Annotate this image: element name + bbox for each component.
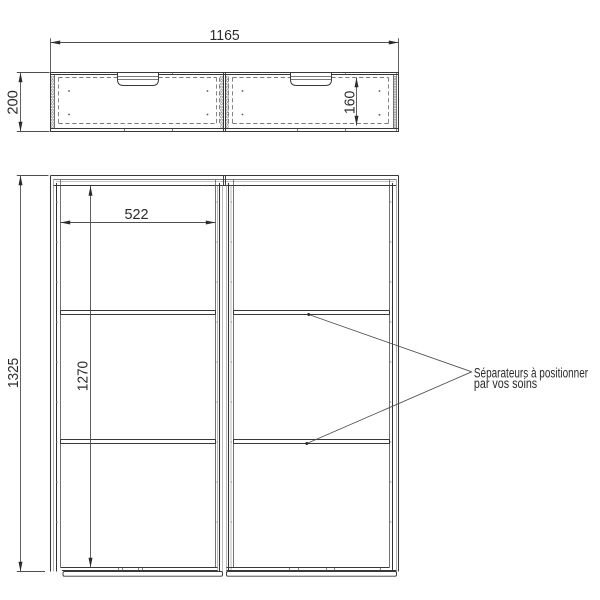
- svg-text:522: 522: [125, 207, 149, 223]
- svg-text:160: 160: [342, 91, 358, 115]
- svg-text:200: 200: [6, 90, 22, 115]
- svg-text:1270: 1270: [76, 361, 92, 391]
- svg-text:1165: 1165: [210, 28, 240, 44]
- svg-text:par vos soins: par vos soins: [474, 376, 538, 391]
- svg-text:1325: 1325: [6, 358, 22, 388]
